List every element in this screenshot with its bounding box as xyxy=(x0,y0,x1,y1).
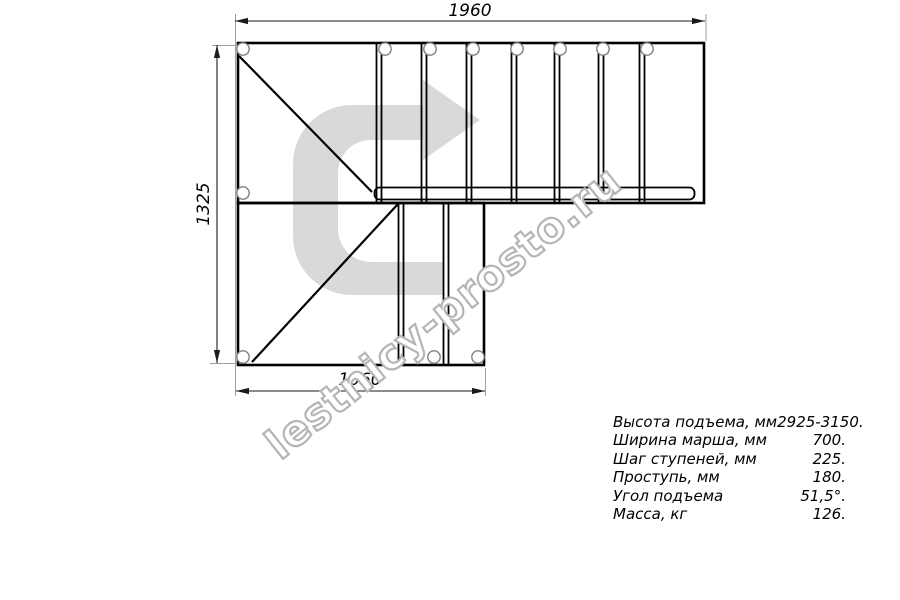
spec-row: Ширина марша, мм 700. xyxy=(613,431,846,449)
stringer-strip xyxy=(375,188,695,200)
spec-label: Масса, кг xyxy=(613,505,687,523)
mount-hole xyxy=(237,187,249,199)
dim-arrow-left-icon xyxy=(236,388,249,394)
mount-hole xyxy=(511,43,523,55)
spec-row: Масса, кг 126. xyxy=(613,505,846,523)
spec-row: Высота подъема, мм 2925-3150. xyxy=(613,413,846,431)
spec-row: Шаг ступеней, мм 225. xyxy=(613,450,846,468)
mount-hole xyxy=(597,43,609,55)
dimension-left: 1325 xyxy=(194,45,220,363)
dimension-top-value: 1960 xyxy=(448,1,491,21)
spec-label: Высота подъема, мм xyxy=(613,413,777,431)
spec-row: Проступь, мм 180. xyxy=(613,468,846,486)
mount-hole xyxy=(472,351,484,363)
dim-arrow-down-icon xyxy=(214,350,220,363)
dim-arrow-up-icon xyxy=(214,45,220,58)
stair-plan-page: 1960 1325 1060 lestnicy-prosto.ru Высота… xyxy=(0,0,900,600)
dim-arrow-right-icon xyxy=(692,18,705,24)
mount-hole xyxy=(641,43,653,55)
spec-value: 2925-3150. xyxy=(777,413,864,431)
spec-label: Угол подъема xyxy=(613,487,723,505)
mount-hole xyxy=(237,43,249,55)
spec-value: 126. xyxy=(813,505,846,523)
dim-arrow-left-icon xyxy=(235,18,248,24)
mount-hole xyxy=(554,43,566,55)
spec-label: Проступь, мм xyxy=(613,468,720,486)
dimension-left-value: 1325 xyxy=(194,182,214,225)
spec-value: 180. xyxy=(813,468,846,486)
spec-table: Высота подъема, мм 2925-3150. Ширина мар… xyxy=(613,413,846,523)
mount-hole xyxy=(424,43,436,55)
spec-value: 225. xyxy=(813,450,846,468)
mount-hole xyxy=(237,351,249,363)
dim-arrow-right-icon xyxy=(472,388,485,394)
spec-row: Угол подъема 51,5°. xyxy=(613,487,846,505)
spec-value: 700. xyxy=(813,431,846,449)
spec-value: 51,5°. xyxy=(800,487,846,505)
spec-label: Ширина марша, мм xyxy=(613,431,767,449)
mount-hole xyxy=(379,43,391,55)
mount-hole xyxy=(467,43,479,55)
extension-lines xyxy=(210,14,706,396)
dimension-top: 1960 xyxy=(235,1,705,24)
spec-label: Шаг ступеней, мм xyxy=(613,450,757,468)
